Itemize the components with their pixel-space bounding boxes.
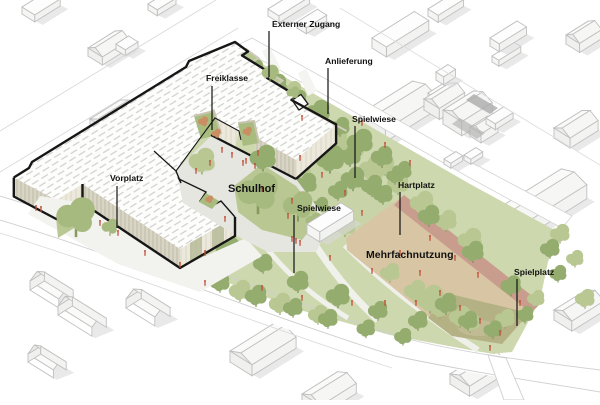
svg-text:Schulhof: Schulhof (228, 183, 275, 195)
svg-text:Vorplatz: Vorplatz (110, 173, 143, 183)
svg-text:Hartplatz: Hartplatz (398, 180, 435, 190)
svg-text:Mehrfachnutzung: Mehrfachnutzung (366, 249, 454, 261)
svg-text:Spielwiese: Spielwiese (297, 203, 341, 213)
svg-text:Freiklasse: Freiklasse (206, 73, 248, 83)
svg-text:Spielwiese: Spielwiese (352, 114, 396, 124)
svg-text:Externer Zugang: Externer Zugang (272, 19, 340, 29)
svg-text:Spielplatz: Spielplatz (514, 267, 554, 277)
svg-text:Anlieferung: Anlieferung (325, 56, 373, 66)
